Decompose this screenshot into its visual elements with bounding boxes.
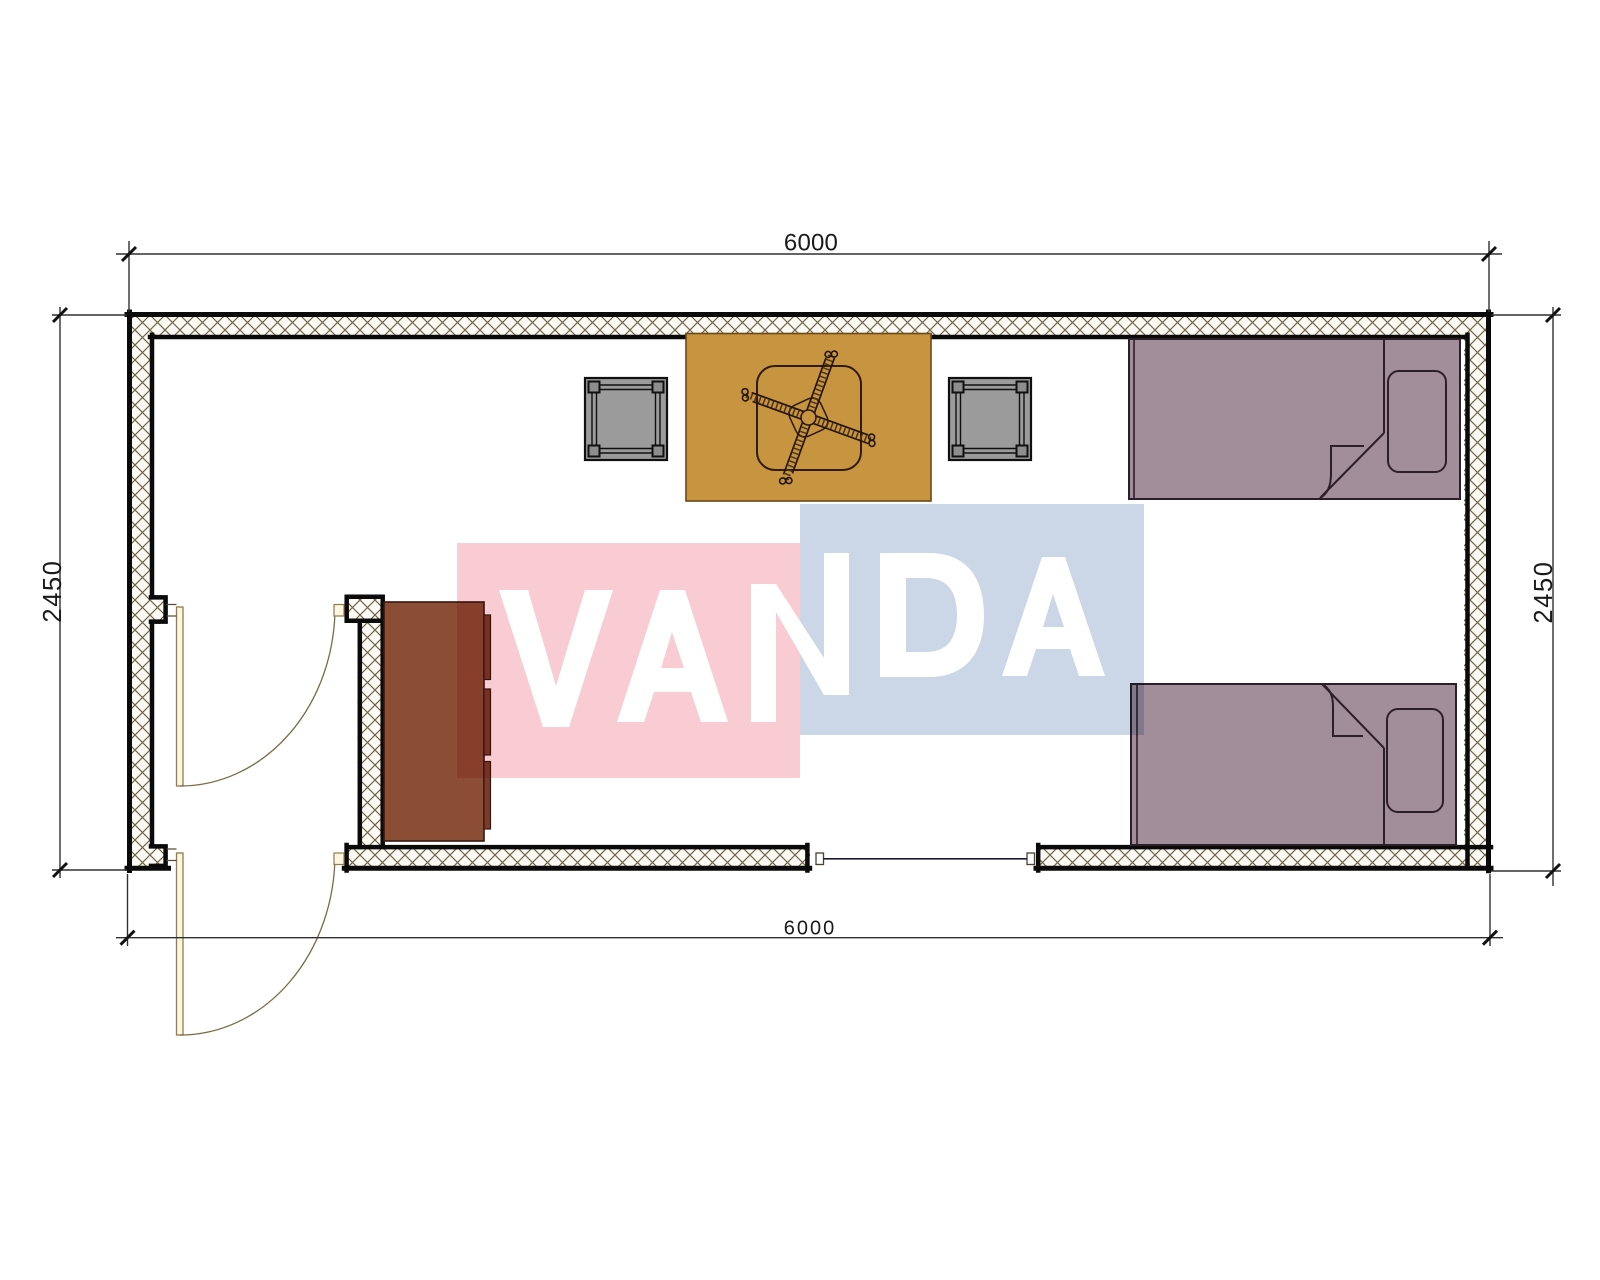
svg-text:2450: 2450 xyxy=(39,559,67,622)
svg-text:2450: 2450 xyxy=(1530,560,1558,623)
svg-text:6000: 6000 xyxy=(784,918,837,940)
svg-text:6000: 6000 xyxy=(784,230,838,257)
